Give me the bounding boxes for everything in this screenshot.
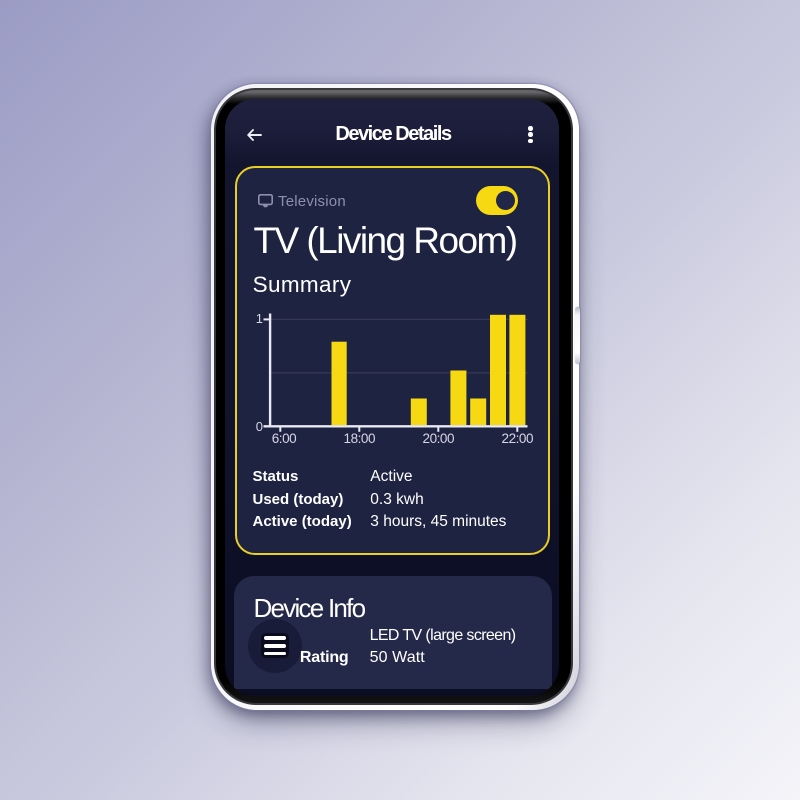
svg-text:6:00: 6:00 bbox=[271, 431, 295, 446]
svg-text:0: 0 bbox=[255, 418, 262, 433]
svg-text:18:00: 18:00 bbox=[343, 431, 375, 446]
svg-text:22:00: 22:00 bbox=[501, 431, 533, 446]
svg-text:1: 1 bbox=[255, 310, 262, 325]
svg-text:20:00: 20:00 bbox=[422, 431, 454, 446]
